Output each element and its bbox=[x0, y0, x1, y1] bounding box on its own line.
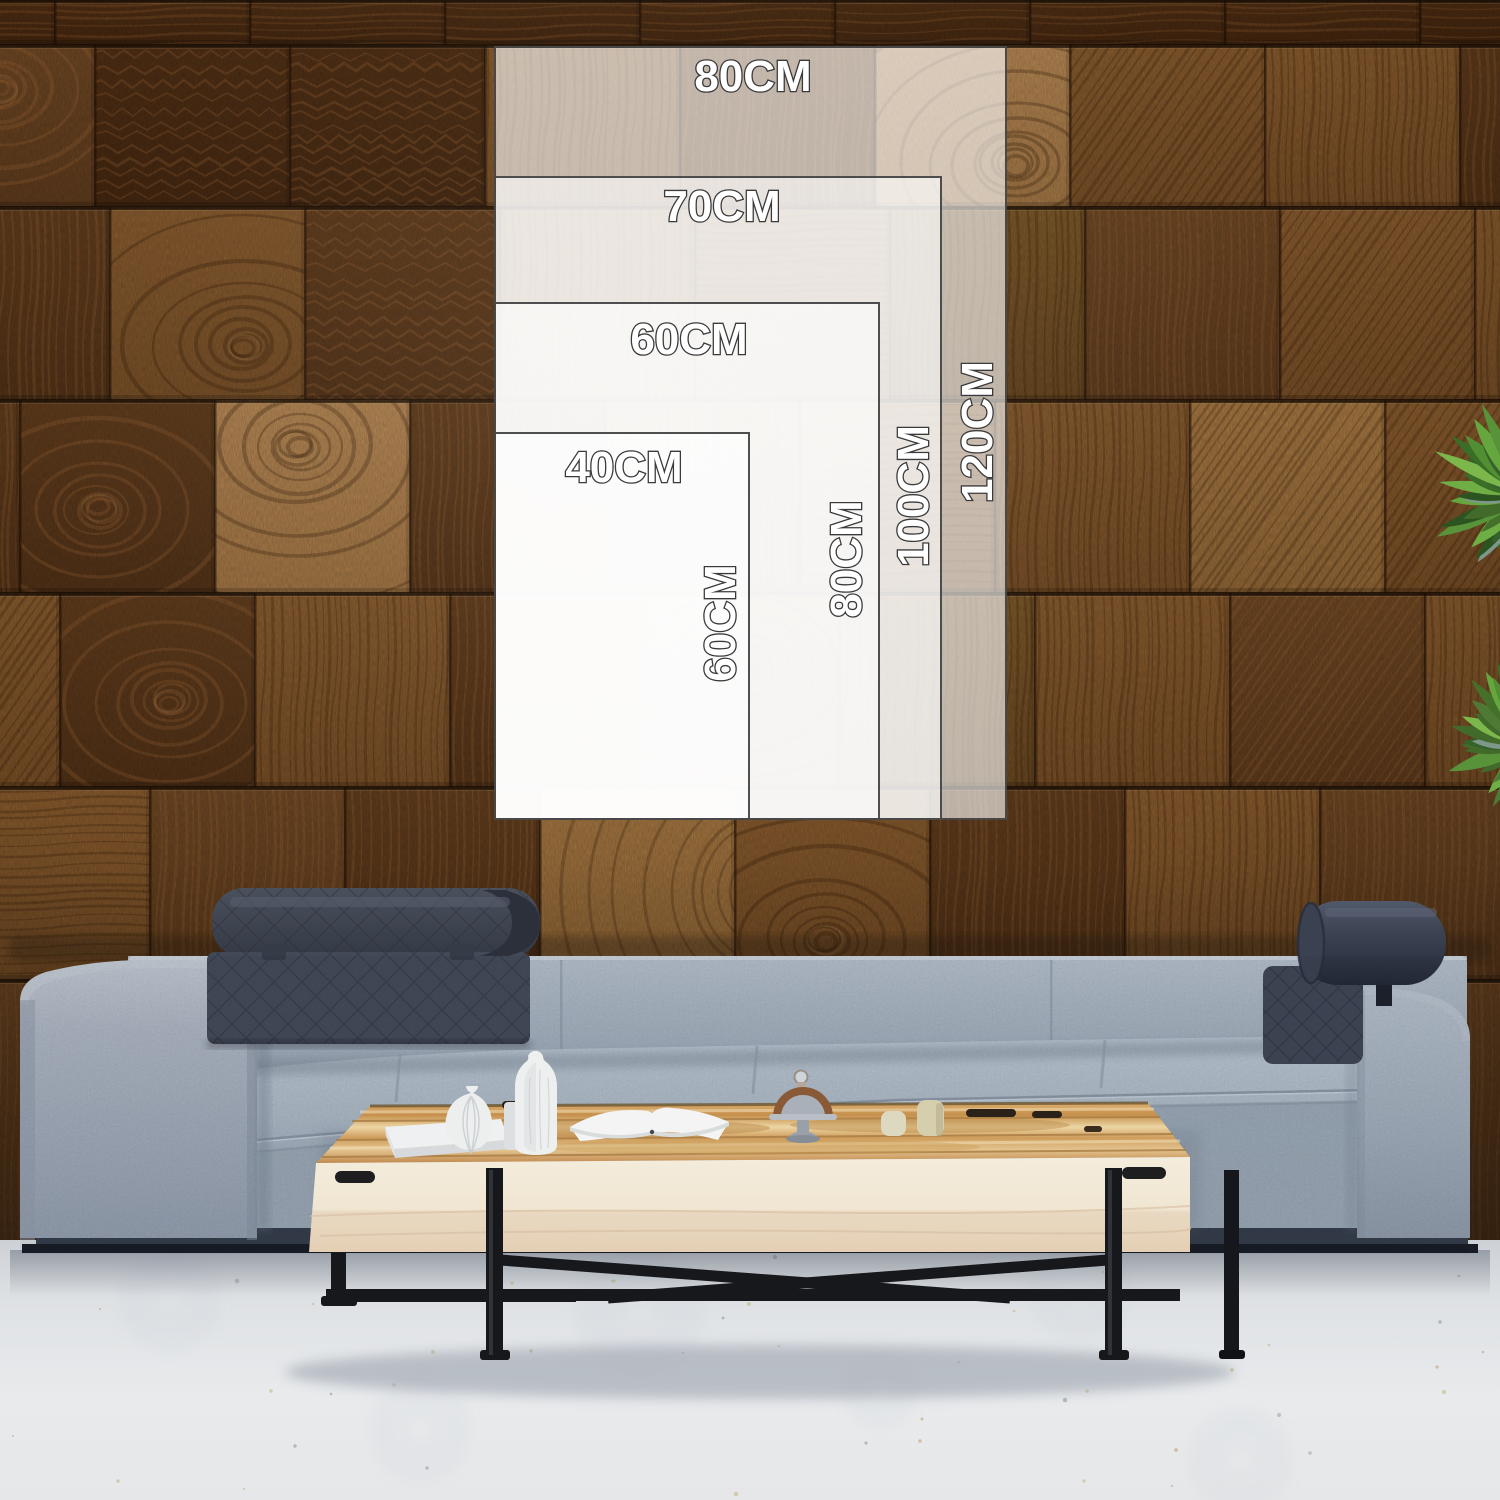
svg-text:80CM: 80CM bbox=[822, 500, 871, 617]
svg-text:70CM: 70CM bbox=[663, 182, 780, 231]
svg-text:120CM: 120CM bbox=[953, 361, 1002, 503]
svg-text:60CM: 60CM bbox=[630, 315, 747, 364]
svg-text:60CM: 60CM bbox=[696, 564, 745, 681]
svg-text:40CM: 40CM bbox=[565, 443, 682, 492]
svg-text:100CM: 100CM bbox=[889, 425, 938, 567]
svg-text:80CM: 80CM bbox=[694, 52, 811, 101]
